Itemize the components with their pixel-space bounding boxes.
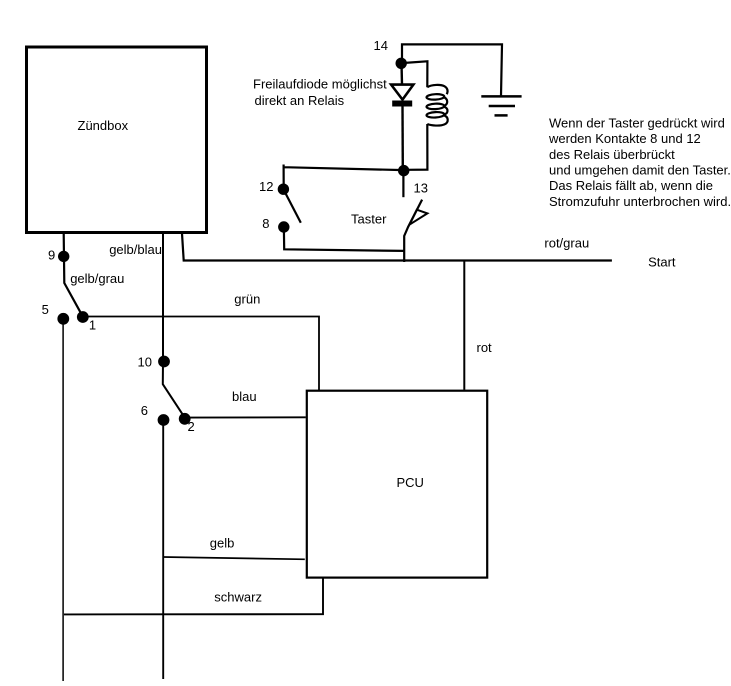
svg-text:blau: blau bbox=[232, 389, 257, 404]
svg-text:2: 2 bbox=[188, 419, 195, 434]
svg-text:gelb/grau: gelb/grau bbox=[70, 271, 124, 286]
svg-text:6: 6 bbox=[141, 403, 148, 418]
svg-text:rot: rot bbox=[477, 340, 493, 355]
svg-text:1: 1 bbox=[89, 318, 96, 333]
svg-text:direkt an Relais: direkt an Relais bbox=[255, 93, 345, 108]
svg-text:10: 10 bbox=[138, 354, 152, 369]
svg-text:Wenn der Taster gedrückt wird: Wenn der Taster gedrückt wird bbox=[549, 115, 725, 130]
svg-text:Das Relais fällt ab, wenn die: Das Relais fällt ab, wenn die bbox=[549, 178, 713, 193]
svg-text:Stromzufuhr unterbrochen wird.: Stromzufuhr unterbrochen wird. bbox=[549, 194, 731, 209]
svg-text:und umgehen damit den Taster.: und umgehen damit den Taster. bbox=[549, 163, 731, 178]
svg-text:PCU: PCU bbox=[397, 475, 424, 490]
svg-text:9: 9 bbox=[48, 248, 55, 263]
svg-text:8: 8 bbox=[262, 216, 269, 231]
svg-text:12: 12 bbox=[259, 179, 273, 194]
svg-text:grün: grün bbox=[234, 291, 260, 306]
svg-text:Taster: Taster bbox=[351, 212, 387, 227]
svg-text:5: 5 bbox=[42, 302, 49, 317]
svg-text:rot/grau: rot/grau bbox=[544, 236, 589, 251]
svg-text:werden Kontakte 8 und 12: werden Kontakte 8 und 12 bbox=[548, 131, 701, 146]
svg-text:Freilaufdiode möglichst: Freilaufdiode möglichst bbox=[253, 76, 387, 91]
svg-text:13: 13 bbox=[414, 181, 428, 196]
svg-text:14: 14 bbox=[374, 38, 388, 53]
svg-text:gelb: gelb bbox=[210, 535, 235, 550]
svg-text:schwarz: schwarz bbox=[214, 590, 262, 605]
svg-text:Start: Start bbox=[648, 255, 676, 270]
svg-text:des Relais überbrückt: des Relais überbrückt bbox=[549, 147, 675, 162]
svg-text:gelb/blau: gelb/blau bbox=[109, 242, 162, 257]
svg-text:Zündbox: Zündbox bbox=[78, 118, 129, 133]
